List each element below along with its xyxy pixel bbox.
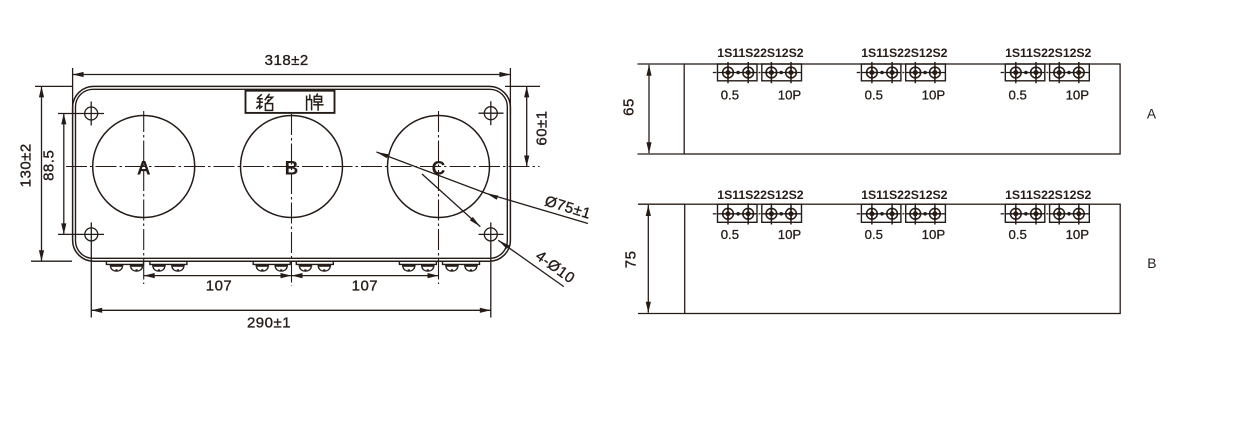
svg-text:0.5: 0.5	[865, 88, 883, 103]
svg-text:B: B	[285, 158, 299, 179]
svg-text:B: B	[1147, 256, 1156, 271]
svg-text:130±2: 130±2	[18, 143, 35, 187]
svg-text:0.5: 0.5	[1009, 227, 1027, 242]
svg-text:75: 75	[623, 251, 640, 269]
svg-text:88.5: 88.5	[41, 150, 58, 181]
svg-text:0.5: 0.5	[1009, 88, 1027, 103]
svg-text:1S11S22S12S2: 1S11S22S12S2	[861, 46, 947, 60]
svg-text:0.5: 0.5	[721, 227, 739, 242]
svg-text:0.5: 0.5	[865, 227, 883, 242]
svg-text:318±2: 318±2	[265, 52, 309, 69]
svg-text:65: 65	[621, 98, 638, 116]
svg-text:1S11S22S12S2: 1S11S22S12S2	[861, 188, 947, 202]
svg-text:10P: 10P	[922, 88, 946, 103]
svg-text:0.5: 0.5	[721, 88, 739, 103]
svg-text:107: 107	[352, 278, 379, 295]
svg-text:10P: 10P	[1066, 88, 1090, 103]
svg-text:60±1: 60±1	[534, 110, 551, 145]
svg-text:C: C	[432, 158, 446, 179]
svg-text:290±1: 290±1	[247, 315, 291, 332]
svg-text:10P: 10P	[778, 88, 802, 103]
svg-text:1S11S22S12S2: 1S11S22S12S2	[717, 46, 803, 60]
svg-text:10P: 10P	[922, 227, 946, 242]
svg-text:A: A	[137, 158, 151, 179]
svg-text:A: A	[1147, 106, 1157, 121]
svg-text:1S11S22S12S2: 1S11S22S12S2	[717, 188, 803, 202]
svg-text:1S11S22S12S2: 1S11S22S12S2	[1005, 188, 1091, 202]
svg-text:10P: 10P	[778, 227, 802, 242]
svg-text:10P: 10P	[1066, 227, 1090, 242]
svg-text:107: 107	[206, 278, 233, 295]
svg-text:1S11S22S12S2: 1S11S22S12S2	[1005, 46, 1091, 60]
